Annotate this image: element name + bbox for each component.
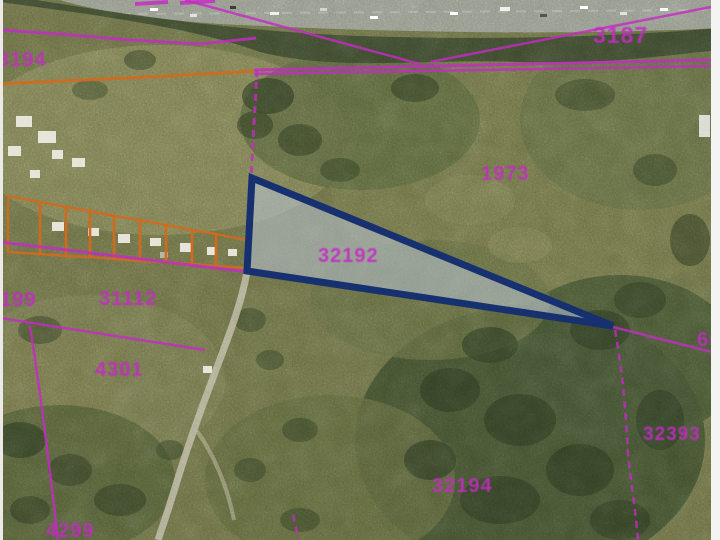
- parcel-label-32194: 32194: [432, 475, 493, 498]
- parcel-label-4199: 4199: [0, 289, 37, 312]
- parcel-label-3194: 3194: [0, 49, 47, 72]
- parcel-label-4299: 4299: [46, 520, 95, 540]
- parcel-label-32192: 32192: [318, 245, 379, 268]
- parcel-label-4301: 4301: [95, 359, 144, 382]
- parcel-label-31112: 31112: [99, 288, 157, 311]
- parcel-label-32393: 32393: [643, 424, 701, 446]
- map-edge-strip-left: [0, 0, 3, 540]
- map-viewport[interactable]: 3187 3194 1973 32192 4199 31112 4301 321…: [0, 0, 720, 540]
- map-edge-strip-right: [711, 0, 720, 540]
- map-canvas[interactable]: [0, 0, 720, 540]
- parcel-label-3187: 3187: [593, 22, 648, 49]
- parcel-label-1973: 1973: [481, 163, 530, 186]
